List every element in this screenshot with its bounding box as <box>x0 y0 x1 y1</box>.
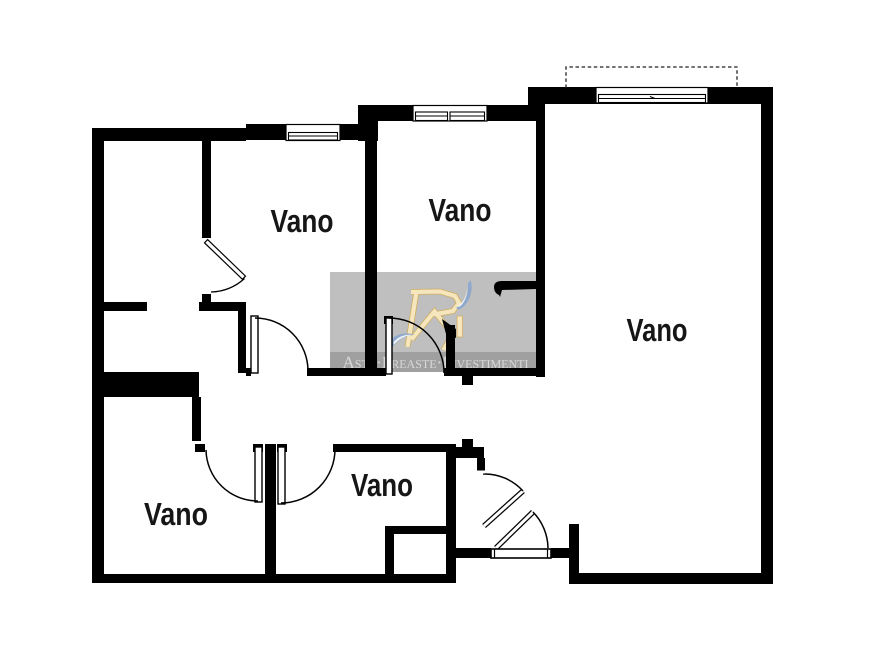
svg-text:Vano: Vano <box>627 312 688 348</box>
svg-text:Vano: Vano <box>271 203 334 239</box>
svg-text:Vano: Vano <box>429 192 492 228</box>
svg-text:Vano: Vano <box>351 467 413 503</box>
svg-text:Vano: Vano <box>144 496 208 532</box>
